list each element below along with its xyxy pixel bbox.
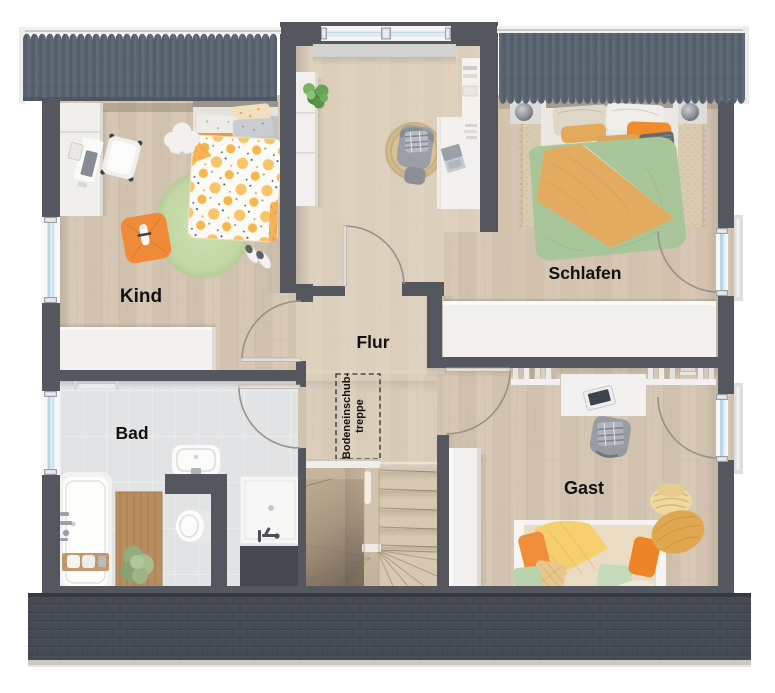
svg-text:Gast: Gast <box>564 478 604 498</box>
svg-text:Kind: Kind <box>120 286 162 307</box>
svg-text:Bad: Bad <box>115 423 148 443</box>
svg-text:Schlafen: Schlafen <box>549 263 622 283</box>
svg-text:Bodeneinschub-: Bodeneinschub- <box>341 373 353 460</box>
svg-text:Flur: Flur <box>356 332 389 352</box>
svg-text:treppe: treppe <box>354 399 366 433</box>
